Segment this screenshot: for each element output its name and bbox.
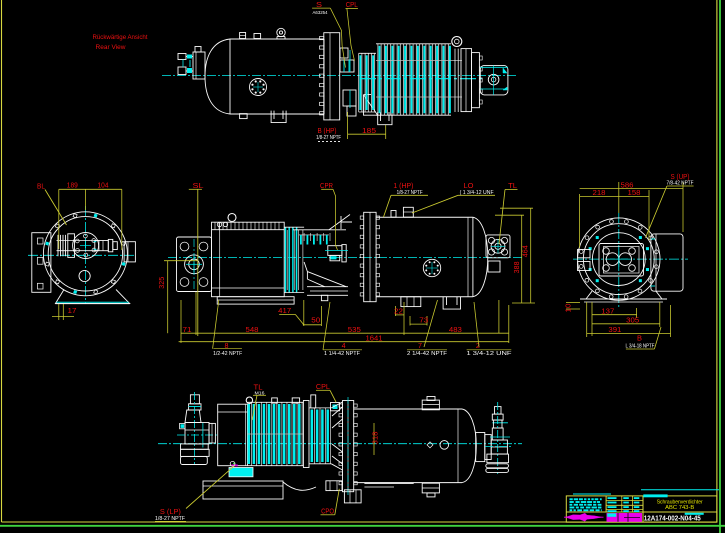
svg-text:Rear View: Rear View — [96, 45, 127, 51]
svg-text:158: 158 — [628, 190, 641, 197]
svg-text:M16: M16 — [255, 391, 266, 396]
svg-text:71: 71 — [183, 327, 192, 334]
svg-text:( 1 3/4-12 UNF: ( 1 3/4-12 UNF — [460, 190, 494, 196]
svg-text:BL: BL — [37, 184, 45, 191]
svg-text:218: 218 — [593, 190, 606, 197]
svg-text:1/8-27 NPTF: 1/8-27 NPTF — [316, 135, 341, 141]
svg-text:1 1/4-42 NPTF: 1 1/4-42 NPTF — [324, 351, 360, 357]
svg-text:L 3/4-18 NPTF: L 3/4-18 NPTF — [626, 344, 655, 350]
svg-text:73: 73 — [419, 318, 428, 325]
svg-text:318: 318 — [373, 431, 380, 444]
svg-text:12A174-002-N04-45: 12A174-002-N04-45 — [644, 514, 701, 523]
svg-text:7/8-42 NPTF: 7/8-42 NPTF — [667, 181, 694, 187]
svg-text:535: 535 — [348, 327, 361, 334]
svg-text:483: 483 — [449, 327, 462, 334]
svg-text:388: 388 — [514, 261, 521, 273]
svg-text:189: 189 — [67, 183, 78, 190]
svg-text:325: 325 — [159, 277, 166, 289]
svg-text:7: 7 — [418, 343, 422, 350]
svg-text:17: 17 — [68, 308, 77, 315]
svg-text:CPL: CPL — [346, 2, 358, 9]
svg-text:1/8-27 NPTF: 1/8-27 NPTF — [397, 190, 423, 196]
svg-text:TL: TL — [508, 183, 517, 190]
svg-text:548: 548 — [246, 327, 259, 334]
svg-text:A63254: A63254 — [313, 10, 328, 15]
svg-text:10: 10 — [566, 303, 573, 312]
svg-text:Rückwärtige Ansicht: Rückwärtige Ansicht — [93, 35, 148, 41]
svg-text:391: 391 — [608, 327, 621, 334]
svg-text:22: 22 — [394, 309, 403, 316]
svg-text:1/2-42 NPTF: 1/2-42 NPTF — [213, 351, 242, 357]
svg-text:464: 464 — [523, 245, 530, 257]
svg-text:1641: 1641 — [366, 335, 383, 342]
svg-text:185: 185 — [362, 128, 376, 135]
svg-text:104: 104 — [98, 183, 109, 190]
svg-text:B: B — [637, 336, 642, 343]
svg-text:ABC 743-B: ABC 743-B — [665, 505, 694, 511]
svg-text:B (HP): B (HP) — [318, 128, 337, 135]
svg-text:1 3/4-12 UNF: 1 3/4-12 UNF — [467, 351, 512, 357]
svg-text:2 1/4-42 NPTF: 2 1/4-42 NPTF — [407, 351, 447, 357]
svg-text:2: 2 — [476, 343, 480, 350]
svg-text:4: 4 — [342, 343, 346, 350]
svg-text:305: 305 — [626, 318, 639, 325]
svg-text:586: 586 — [621, 182, 634, 189]
svg-text:137: 137 — [601, 308, 614, 315]
svg-text:S (LP): S (LP) — [160, 509, 181, 516]
svg-text:50: 50 — [311, 318, 320, 325]
